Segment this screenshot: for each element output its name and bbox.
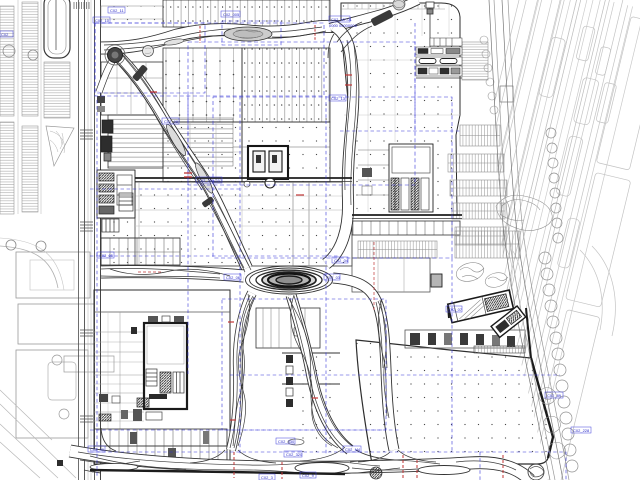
svg-text:C02_11: C02_11 xyxy=(110,8,124,13)
svg-text:C02_330: C02_330 xyxy=(278,439,295,444)
svg-text:C02_13: C02_13 xyxy=(331,96,346,101)
svg-text:C02_9: C02_9 xyxy=(302,473,315,478)
svg-text:C02_228: C02_228 xyxy=(573,428,590,433)
svg-text:C02_M4: C02_M4 xyxy=(345,447,361,452)
svg-text:C02_89: C02_89 xyxy=(547,393,562,398)
svg-text:C02_06: C02_06 xyxy=(226,275,241,280)
svg-text:C02: C02 xyxy=(1,32,9,37)
svg-text:C02_40: C02_40 xyxy=(90,447,105,452)
svg-text:C02_03: C02_03 xyxy=(326,275,341,280)
svg-text:C02_05: C02_05 xyxy=(99,253,114,258)
svg-text:C02_320: C02_320 xyxy=(286,452,303,457)
svg-text:C02_M7-01: C02_M7-01 xyxy=(331,17,353,22)
svg-text:C02_04: C02_04 xyxy=(334,258,349,263)
svg-text:C02_255/257: C02_255/257 xyxy=(198,178,223,183)
svg-text:0000 00000000: 0000 00000000 xyxy=(329,23,358,28)
svg-text:C02_08: C02_08 xyxy=(164,119,179,124)
svg-text:C02_07: C02_07 xyxy=(448,307,463,312)
svg-text:C02_005: C02_005 xyxy=(223,12,240,17)
svg-text:C02_10: C02_10 xyxy=(95,18,110,23)
svg-text:C02_3: C02_3 xyxy=(261,475,274,480)
